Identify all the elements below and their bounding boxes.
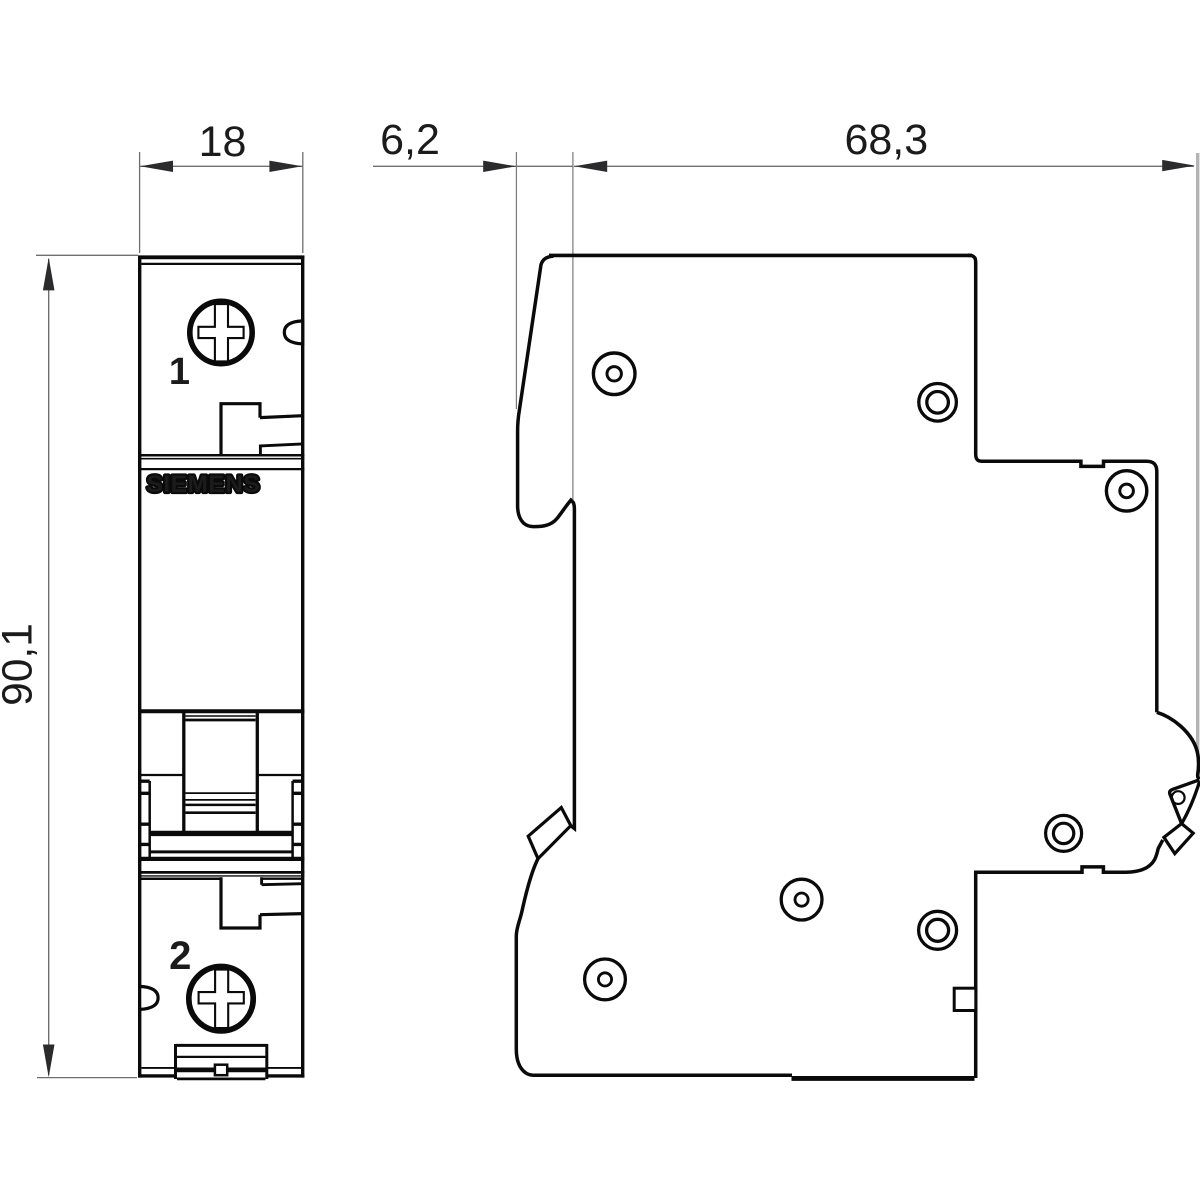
svg-text:2: 2 [169, 934, 191, 978]
svg-text:68,3: 68,3 [844, 116, 928, 164]
svg-text:1: 1 [169, 351, 190, 393]
svg-text:6,2: 6,2 [380, 116, 440, 164]
svg-text:90,1: 90,1 [0, 623, 42, 706]
svg-text:SIEMENS: SIEMENS [147, 471, 261, 498]
svg-text:18: 18 [199, 118, 247, 166]
